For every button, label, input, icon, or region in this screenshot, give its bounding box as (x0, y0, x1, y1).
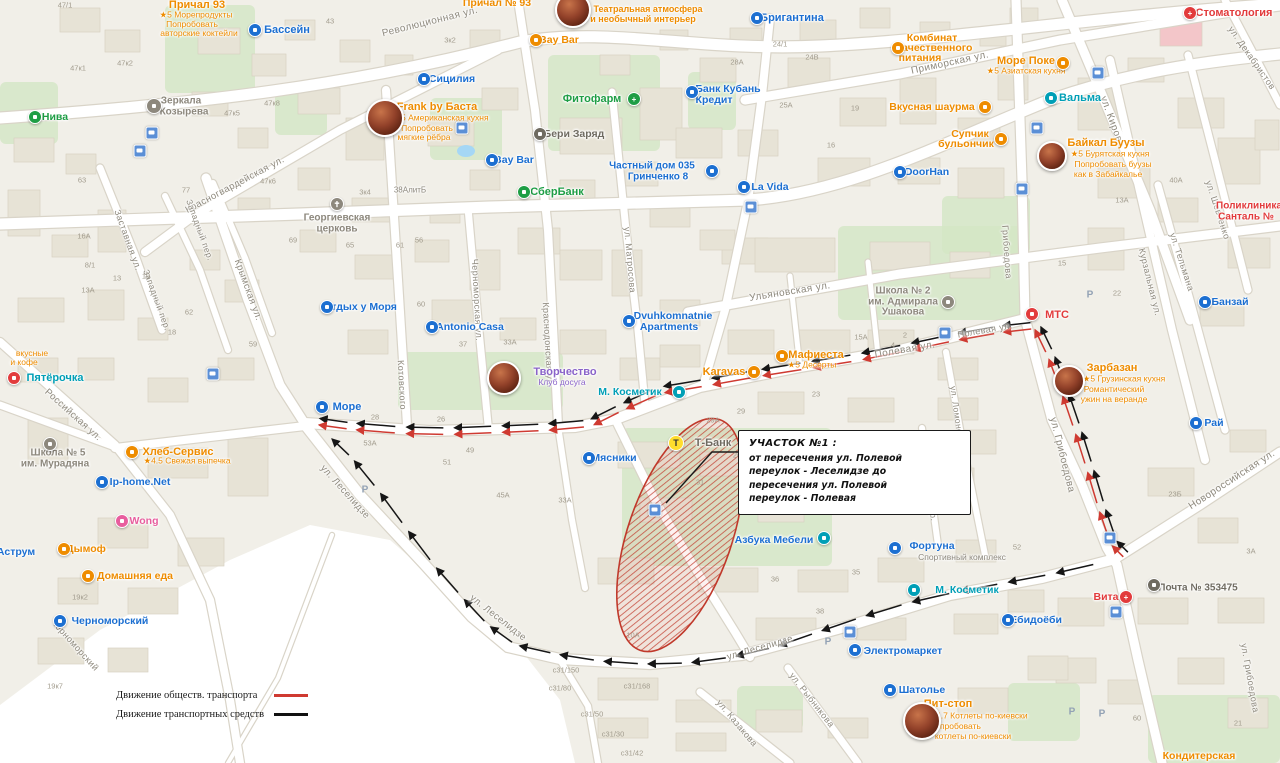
poi-label[interactable]: Георгиевская (304, 213, 371, 224)
poi-icon[interactable] (582, 451, 596, 465)
parking-icon: Р (1087, 290, 1094, 301)
street-label: ул. Матросова (622, 227, 638, 294)
street-label: Ульяновская ул. (749, 280, 832, 304)
labels-layer: Революционная ул.Приморская ул.ул. Киров… (0, 0, 1280, 763)
poi-label[interactable]: Клуб досуга (538, 377, 585, 387)
street-label: Новороссийская ул. (1187, 448, 1277, 512)
house-number: 33А (503, 338, 516, 347)
poi-label[interactable]: М. Косметик (935, 584, 998, 596)
poi-label[interactable]: Романтический (1084, 384, 1145, 394)
bus-stop-icon[interactable] (1031, 122, 1044, 135)
map-canvas[interactable]: Революционная ул.Приморская ул.ул. Киров… (0, 0, 1280, 763)
poi-label[interactable]: Фитофарм (563, 93, 622, 105)
legend-label-public: Движение обществ. транспорта (116, 690, 268, 701)
parking-icon: Р (1069, 707, 1076, 718)
poi-icon[interactable] (517, 185, 531, 199)
house-number: 24В (805, 53, 818, 62)
house-number: 2 (903, 331, 907, 340)
poi-label[interactable]: Мясники (591, 452, 636, 464)
photo-poi-icon[interactable] (366, 99, 404, 137)
poi-label[interactable]: Спортивный комплекс (918, 552, 1006, 562)
house-number: 19 (851, 104, 859, 113)
house-number: с31/80 (549, 684, 572, 693)
poi-label[interactable]: Wong (130, 515, 159, 527)
house-number: 47к8 (264, 99, 280, 108)
annotation-line: переулок - Полевая (749, 492, 961, 505)
house-number: 62 (185, 308, 193, 317)
poi-label[interactable]: Вита (1093, 591, 1118, 603)
house-number: 19 (142, 272, 150, 281)
legend-swatch-public-transport (274, 694, 308, 696)
street-label: Революционная ул. (381, 5, 479, 39)
house-number: с31/50 (581, 710, 604, 719)
poi-icon[interactable] (81, 569, 95, 583)
house-number: 28А (730, 58, 743, 67)
poi-label[interactable]: Аструм (0, 546, 35, 558)
street-label: ул. Рыбникова (788, 671, 837, 730)
street-label: ул. Тельмана (1168, 232, 1196, 293)
house-number: 13А (81, 286, 94, 295)
poi-icon[interactable] (750, 11, 764, 25)
poi-label[interactable]: Санталь № (1218, 212, 1274, 223)
house-number: 24/1 (773, 40, 788, 49)
annotation-title: УЧАСТОК №1 : (749, 438, 961, 449)
house-number: 60 (1133, 714, 1141, 723)
poi-label[interactable]: Сицилия (429, 73, 475, 85)
poi-icon[interactable] (893, 165, 907, 179)
poi-label[interactable]: Шатолье (899, 684, 946, 696)
poi-icon[interactable] (705, 164, 719, 178)
poi-label[interactable]: и необычный интерьер (590, 14, 696, 24)
poi-icon[interactable] (1025, 307, 1039, 321)
poi-label[interactable]: авторские коктейли (160, 28, 237, 38)
poi-icon[interactable] (533, 127, 547, 141)
poi-icon[interactable]: ✝ (330, 197, 344, 211)
poi-icon[interactable]: + (627, 92, 641, 106)
poi-icon[interactable] (978, 100, 992, 114)
house-number: 53А (363, 439, 376, 448)
poi-icon[interactable] (907, 583, 921, 597)
poi-label[interactable]: Bay Bar (539, 34, 579, 46)
poi-icon[interactable] (425, 320, 439, 334)
bus-stop-icon[interactable] (134, 145, 147, 158)
poi-icon[interactable] (485, 153, 499, 167)
poi-label[interactable]: СберБанк (530, 186, 584, 198)
poi-label[interactable]: ★5 Американская кухня (393, 113, 488, 124)
poi-label[interactable]: DoorHan (905, 166, 949, 178)
house-number: 47к6 (260, 177, 276, 186)
house-number: 25А (779, 101, 792, 110)
poi-label[interactable]: Школа № 2 (876, 286, 931, 297)
house-number: 29 (737, 407, 745, 416)
poi-label[interactable]: Козырева (160, 107, 209, 118)
poi-icon[interactable] (941, 295, 955, 309)
poi-label[interactable]: Частный дом 035 (609, 161, 695, 172)
poi-label[interactable]: Бригантина (760, 12, 824, 24)
street-label: ул. Грибоедова (1047, 416, 1076, 494)
poi-label[interactable]: Электромаркет (864, 645, 943, 657)
house-number: 3к4 (359, 188, 371, 197)
parking-icon: Р (362, 485, 369, 496)
poi-label[interactable]: мягкие рёбра (398, 132, 451, 142)
annotation-line: переулок - Леселидзе до (749, 465, 961, 478)
poi-label[interactable]: Море (333, 401, 362, 413)
house-number: 52 (1013, 543, 1021, 552)
poi-icon[interactable] (53, 614, 67, 628)
poi-label[interactable]: как в Забайкалье (1074, 169, 1142, 179)
section-annotation: УЧАСТОК №1 : от пересечения ул. Полевой … (738, 430, 971, 515)
house-number: 60 (417, 300, 425, 309)
poi-icon[interactable] (7, 371, 21, 385)
poi-label[interactable]: церковь (316, 224, 357, 235)
bus-stop-icon[interactable] (456, 122, 469, 135)
poi-icon[interactable] (146, 98, 162, 114)
poi-label[interactable]: Нива (42, 111, 68, 123)
house-number: 3А (1246, 547, 1255, 556)
poi-label[interactable]: Ебидоёби (1010, 614, 1062, 626)
poi-label[interactable]: Стоматология (1196, 7, 1273, 19)
poi-label[interactable]: Почта № 353475 (1158, 583, 1237, 594)
poi-icon[interactable] (1198, 295, 1212, 309)
street-label: Крымская ул. (232, 258, 264, 322)
house-number: 47к5 (224, 109, 240, 118)
poi-icon[interactable] (672, 385, 686, 399)
poi-icon[interactable] (417, 72, 431, 86)
house-number: 37 (459, 340, 467, 349)
poi-label[interactable]: Гринченко 8 (628, 172, 688, 183)
poi-label[interactable]: Дымоф (66, 543, 106, 555)
poi-label[interactable]: Пятёрочка (26, 372, 83, 384)
house-number: 13 (113, 274, 121, 283)
poi-label[interactable]: и кофе (10, 357, 37, 367)
poi-label[interactable]: Frank by Баста (397, 101, 478, 113)
house-number: 65 (346, 241, 354, 250)
poi-label[interactable]: Apartments (640, 321, 698, 333)
poi-label[interactable]: им. Мурадяна (21, 459, 89, 470)
house-number: 63 (78, 176, 86, 185)
poi-label[interactable]: Ip-home.Net (110, 476, 171, 488)
poi-label[interactable]: Bay Bar (494, 154, 534, 166)
house-number: 43 (326, 17, 334, 26)
bus-stop-icon[interactable] (146, 127, 159, 140)
house-number: 28 (371, 413, 379, 422)
poi-icon[interactable] (1044, 91, 1058, 105)
house-number: 15 (1058, 259, 1066, 268)
bus-stop-icon[interactable] (1110, 606, 1123, 619)
house-number: с31/168 (624, 682, 651, 691)
street-label: ул. Казакова (715, 698, 760, 749)
poi-label[interactable]: Отдых у Моря (323, 301, 397, 313)
poi-label[interactable]: Черноморский (72, 615, 149, 627)
bus-stop-icon[interactable] (1104, 532, 1117, 545)
house-number: 10А (626, 631, 639, 640)
poi-label[interactable]: Karavas (703, 366, 746, 378)
house-number: 29А (706, 416, 719, 425)
house-number: 47/1 (58, 1, 73, 10)
poi-label[interactable]: La Vida (751, 181, 788, 193)
poi-label[interactable]: Театральная атмосфера (593, 4, 702, 14)
street-label: Полевая ул. (874, 339, 936, 360)
poi-icon[interactable] (1001, 613, 1015, 627)
poi-label[interactable]: Кредит (696, 94, 733, 106)
bus-stop-icon[interactable] (207, 368, 220, 381)
poi-icon[interactable] (622, 314, 636, 328)
house-number: 61 (396, 241, 404, 250)
house-number: 21 (1234, 719, 1242, 728)
photo-poi-icon[interactable] (487, 361, 521, 395)
poi-label[interactable]: ★5 Бурятская кухня (1071, 149, 1150, 160)
poi-label[interactable]: Кондитерская (1163, 750, 1236, 762)
poi-icon[interactable] (320, 300, 334, 314)
bus-stop-icon[interactable] (1016, 183, 1029, 196)
poi-icon[interactable]: + (1119, 590, 1133, 604)
bus-stop-icon[interactable] (844, 626, 857, 639)
poi-label[interactable]: ★5 Азиатская кухня (987, 66, 1066, 77)
annotation-line: пересечения ул. Полевой (749, 479, 961, 492)
house-number: 36 (771, 575, 779, 584)
poi-label[interactable]: ★5 Десерты (788, 360, 837, 371)
house-number: 56 (415, 236, 423, 245)
poi-icon[interactable] (95, 475, 109, 489)
street-label: ул. Леселидзе (726, 633, 795, 662)
poi-icon[interactable] (529, 33, 543, 47)
poi-label[interactable]: ужин на веранде (1081, 394, 1148, 404)
house-number: 8/1 (85, 261, 95, 270)
poi-icon[interactable]: + (1183, 6, 1197, 20)
poi-icon[interactable] (315, 400, 329, 414)
house-number: 59 (249, 340, 257, 349)
house-number: 69 (289, 236, 297, 245)
street-label: Котовского (396, 360, 409, 410)
house-number: с31/150 (553, 666, 580, 675)
poi-label[interactable]: Ушакова (882, 307, 924, 318)
parking-icon: Р (825, 637, 832, 648)
poi-label[interactable]: Поликлиника (1216, 201, 1280, 212)
poi-label[interactable]: бульончик (938, 138, 994, 150)
legend: Движение обществ. транспорта Движение тр… (116, 690, 308, 728)
house-number: с31/30 (602, 730, 625, 739)
poi-label[interactable]: ★5 Грузинская кухня (1083, 374, 1166, 385)
poi-label[interactable]: МТС (1045, 309, 1069, 321)
poi-label[interactable]: Зеркала (161, 96, 201, 107)
house-number: 77 (182, 186, 190, 195)
house-number: 47к1 (70, 64, 86, 73)
bus-stop-icon[interactable] (1092, 67, 1105, 80)
poi-label[interactable]: Азбука Мебели (735, 534, 814, 546)
photo-poi-icon[interactable] (903, 702, 941, 740)
legend-row-public: Движение обществ. транспорта (116, 690, 308, 701)
street-label: ул. Декабристов (1226, 24, 1277, 91)
house-number: 47к2 (117, 59, 133, 68)
poi-icon[interactable] (248, 23, 262, 37)
house-number: 22 (1113, 289, 1121, 298)
poi-icon[interactable] (115, 514, 129, 528)
poi-label[interactable]: ★4.7 Котлеты по-киевски (928, 711, 1027, 722)
poi-label[interactable]: Причал № 93 (463, 0, 531, 9)
legend-row-vehicles: Движение транспортных средств (116, 709, 308, 720)
street-label: Курзальная ул. (1137, 247, 1163, 317)
house-number: 45А (496, 491, 509, 500)
poi-icon[interactable] (883, 683, 897, 697)
poi-label[interactable]: Банзай (1211, 296, 1248, 308)
bus-stop-icon[interactable] (745, 201, 758, 214)
poi-icon[interactable] (848, 643, 862, 657)
legend-label-vehicles: Движение транспортных средств (116, 709, 268, 720)
poi-label[interactable]: ★4.5 Свежая выпечка (143, 456, 230, 467)
house-number: 35 (852, 568, 860, 577)
poi-label[interactable]: Antonio Casa (436, 321, 504, 333)
house-number: 40А (1169, 176, 1182, 185)
photo-poi-icon[interactable] (1037, 141, 1067, 171)
poi-icon[interactable] (125, 445, 139, 459)
house-number: 33А (558, 496, 571, 505)
house-number: 16 (827, 141, 835, 150)
poi-label[interactable]: Т-Банк (695, 437, 732, 449)
legend-swatch-vehicles (274, 713, 308, 715)
bus-stop-icon[interactable] (649, 504, 662, 517)
house-number: 23 (812, 390, 820, 399)
poi-icon[interactable] (1189, 416, 1203, 430)
poi-label[interactable]: Бери Заряд (544, 128, 605, 140)
house-number: 51 (443, 458, 451, 467)
poi-icon[interactable] (685, 85, 699, 99)
poi-label[interactable]: Зарбазан (1087, 362, 1138, 374)
poi-icon[interactable] (1147, 578, 1161, 592)
poi-label[interactable]: Попробовать буузы (1074, 159, 1151, 169)
poi-label[interactable]: Домашняя еда (97, 570, 173, 582)
street-label: Полевая ул. (957, 320, 1014, 340)
street-label: ул. Леселидзе (468, 593, 529, 644)
photo-poi-icon[interactable] (555, 0, 591, 28)
poi-icon[interactable] (43, 437, 57, 451)
house-number: 31 (696, 478, 704, 487)
poi-icon[interactable] (28, 110, 42, 124)
poi-label[interactable]: Байкал Буузы (1067, 137, 1144, 149)
street-label: ул. Грибоедова (1239, 643, 1261, 714)
poi-label[interactable]: питания (899, 52, 942, 64)
house-number: 38 (816, 607, 824, 616)
house-number: 18 (168, 328, 176, 337)
poi-label[interactable]: М. Косметик (598, 386, 661, 398)
poi-icon[interactable] (57, 542, 71, 556)
poi-icon[interactable] (747, 365, 761, 379)
poi-label[interactable]: Вкусная шаурма (889, 101, 975, 113)
street-label: Заставная ул. (112, 208, 143, 272)
poi-label[interactable]: Фортуна (909, 540, 954, 552)
poi-icon[interactable] (775, 349, 789, 363)
poi-icon[interactable] (737, 180, 751, 194)
house-number: 49 (466, 446, 474, 455)
poi-label[interactable]: котлеты по-киевски (935, 731, 1011, 741)
bus-stop-icon[interactable] (939, 327, 952, 340)
poi-icon[interactable]: Т (668, 435, 684, 451)
house-number: 4 (891, 341, 895, 350)
house-number: с31/42 (621, 749, 644, 758)
poi-icon[interactable] (817, 531, 831, 545)
parking-icon: Р (1099, 709, 1106, 720)
annotation-line: от пересечения ул. Полевой (749, 452, 961, 465)
street-label: Российская ул. (42, 387, 103, 444)
house-number: 16А (77, 232, 90, 241)
poi-label[interactable]: Рай (1204, 417, 1223, 429)
house-number: 19к2 (72, 593, 88, 602)
poi-label[interactable]: Бассейн (264, 24, 310, 36)
poi-icon[interactable] (994, 132, 1008, 146)
house-number: 23Б (1168, 490, 1181, 499)
poi-icon[interactable] (888, 541, 902, 555)
poi-label[interactable]: Вальма (1059, 92, 1101, 104)
poi-icon[interactable] (891, 41, 905, 55)
house-number: 15А (854, 333, 867, 342)
poi-label[interactable]: Школа № 5 (31, 448, 86, 459)
house-number: 3к2 (444, 36, 456, 45)
house-number: 26 (437, 415, 445, 424)
poi-icon[interactable] (1056, 56, 1070, 70)
house-number: 13А (1115, 196, 1128, 205)
poi-label[interactable]: 38АлитБ (394, 186, 426, 195)
house-number: 19к7 (47, 682, 63, 691)
photo-poi-icon[interactable] (1053, 365, 1085, 397)
street-label: Грибоедова (1000, 225, 1014, 279)
